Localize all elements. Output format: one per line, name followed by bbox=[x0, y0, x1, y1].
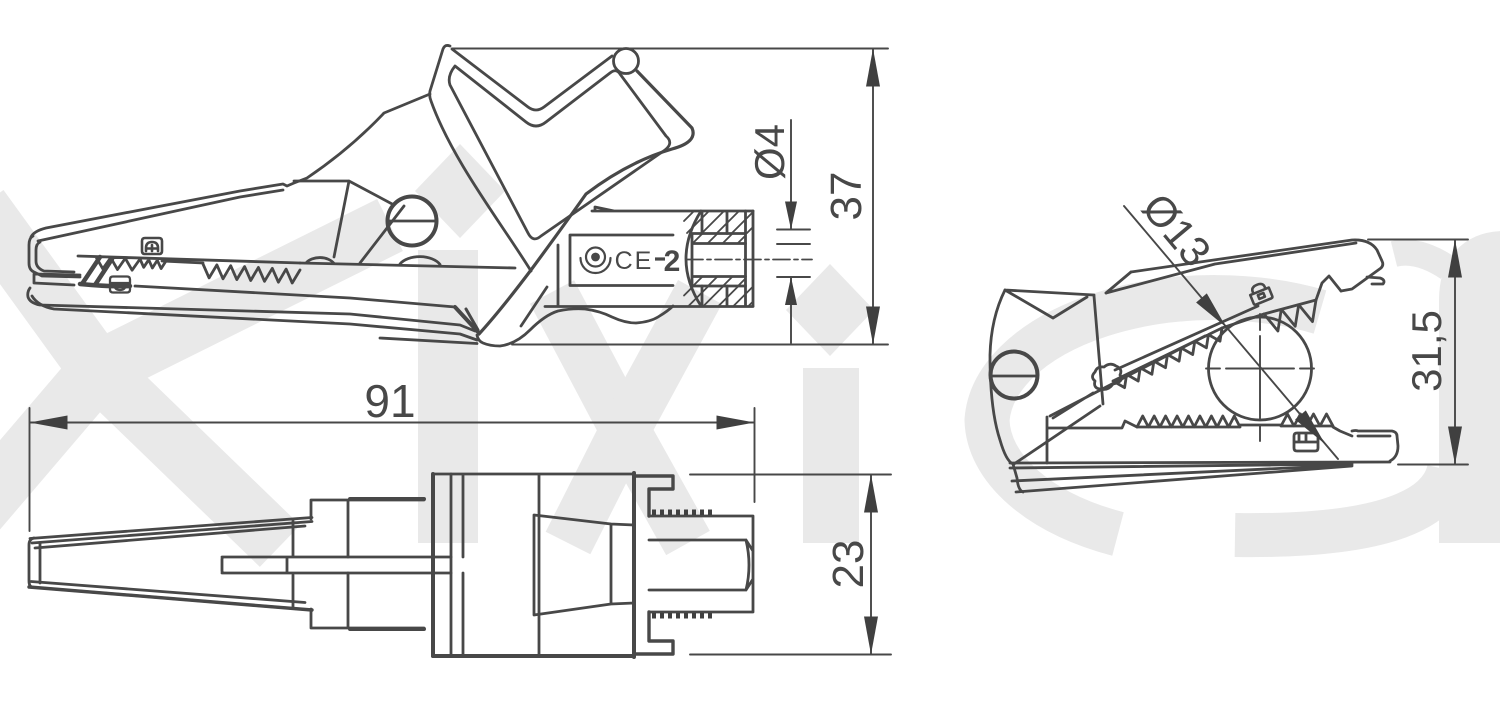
svg-text:Ø4: Ø4 bbox=[746, 124, 793, 180]
svg-text:37: 37 bbox=[822, 172, 871, 221]
svg-text:2: 2 bbox=[664, 245, 681, 278]
svg-text:91: 91 bbox=[364, 375, 415, 427]
svg-text:31,5: 31,5 bbox=[1403, 310, 1450, 392]
svg-text:CE: CE bbox=[615, 247, 654, 275]
svg-text:23: 23 bbox=[824, 540, 873, 589]
